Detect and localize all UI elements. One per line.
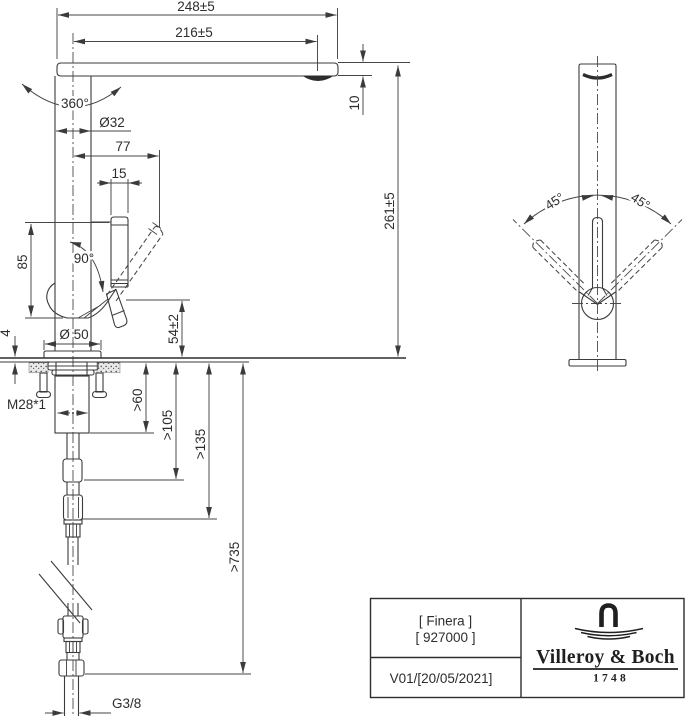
hose-assembly: [39, 433, 92, 716]
dim-clearance-mid: >105: [84, 364, 184, 481]
handle-swing-right-dashed: [611, 240, 662, 291]
dimensions: 248±5 216±5 10 261±5 360° Ø32: [0, 0, 410, 713]
spout-bar: [57, 63, 338, 76]
brand-year: 1748: [593, 673, 629, 685]
swing-axis-left: [513, 220, 598, 304]
shank-collar: [56, 362, 87, 376]
dim-handle-zone-height: 85: [15, 223, 109, 319]
brand-name: Villeroy & Boch: [536, 647, 675, 668]
dim-handle-width: 15: [97, 166, 142, 215]
base-flange: [44, 351, 101, 358]
front-view: 45° 45°: [513, 56, 682, 374]
dim-supply-thread: G3/8: [45, 696, 141, 713]
swing-axis-right: [598, 220, 683, 304]
dim-handle-depth: 77: [74, 139, 160, 228]
dim-spout-height: 261±5: [382, 66, 398, 357]
hose-coupling-1: [63, 459, 82, 482]
dim-label-base-diameter: Ø 50: [59, 327, 88, 342]
dim-label-clearance-mid: >105: [160, 410, 175, 440]
dim-label-total-depth: 248±5: [177, 0, 214, 14]
handle-lever-down: [107, 290, 127, 328]
dim-spout-thickness: 10: [338, 44, 410, 115]
dim-label-spout-reach: 216±5: [175, 25, 212, 40]
supply-pipe: [65, 676, 79, 716]
dim-label-swivel-range: 360°: [61, 96, 89, 111]
dim-label-outlet-clearance: 54±2: [166, 314, 181, 344]
faucet-dimension-drawing: 248±5 216±5 10 261±5 360° Ø32: [0, 0, 696, 720]
handle-swing-left-dashed: [533, 240, 584, 291]
article-number: [ 927000 ]: [415, 630, 475, 645]
dim-outlet-clearance: 54±2: [126, 300, 190, 357]
series-name: [ Finera ]: [419, 614, 472, 629]
dim-clearance-under-deck: >60: [90, 364, 154, 434]
faucet-arch-icon: [602, 606, 616, 628]
technical-drawing-page: 248±5 216±5 10 261±5 360° Ø32: [0, 0, 696, 720]
dim-spout-reach: 216±5: [74, 25, 318, 71]
dim-deck-thickness: 4: [0, 329, 15, 384]
handle-rod: [111, 217, 128, 287]
break-marks: [39, 561, 92, 623]
dim-label-handle-open-angle: 90°: [74, 251, 94, 266]
dim-label-handle-width: 15: [111, 166, 126, 181]
dim-label-body-diameter: Ø32: [99, 115, 125, 130]
stud-left: [40, 373, 47, 392]
dim-label-clearance-under-deck: >60: [130, 389, 145, 412]
shank-body: [55, 376, 89, 433]
ribs-2: [70, 642, 77, 653]
dim-label-spout-height: 261±5: [382, 192, 397, 229]
brand-logo: Villeroy & Boch 1748: [533, 606, 678, 685]
counter-cross-section-right: [97, 363, 120, 373]
dim-label-swing-left: 45°: [542, 190, 567, 213]
dim-label-hose-clearance: >735: [227, 542, 242, 572]
dim-label-deck-thickness: 4: [0, 329, 13, 337]
dim-body-diameter: Ø32: [56, 115, 131, 131]
dim-clearance-low: >135: [82, 364, 217, 520]
lever-cap-line: [112, 311, 125, 316]
mixer-body-facets: [78, 299, 108, 318]
dim-label-spout-thickness: 10: [347, 95, 362, 110]
ribs-1: [70, 524, 77, 537]
dim-label-swing-right: 45°: [628, 190, 653, 213]
dim-label-supply-thread: G3/8: [112, 696, 141, 711]
water-waves-icon: [575, 629, 643, 640]
hex-nut: [59, 660, 84, 676]
dim-label-handle-depth: 77: [115, 139, 130, 154]
mounting-section: [0, 351, 406, 433]
dim-label-handle-zone-height: 85: [15, 254, 30, 269]
counter-cross-section-left: [29, 363, 48, 373]
stud-right: [96, 373, 103, 392]
aerator: [302, 76, 334, 82]
revision-date: V01/[20/05/2021]: [390, 671, 493, 686]
title-block: [ Finera ] [ 927000 ] V01/[20/05/2021] V…: [371, 599, 685, 698]
hex-nut-facets: [67, 660, 77, 676]
dim-base-diameter: Ø 50: [44, 327, 101, 350]
dim-handle-open-angle: 90°: [70, 242, 103, 292]
dim-label-shank-thread: M28*1: [7, 397, 46, 412]
dim-label-clearance-low: >135: [193, 429, 208, 459]
dim-shank-thread: M28*1: [7, 397, 88, 414]
dim-swivel-range: 360°: [22, 84, 121, 111]
